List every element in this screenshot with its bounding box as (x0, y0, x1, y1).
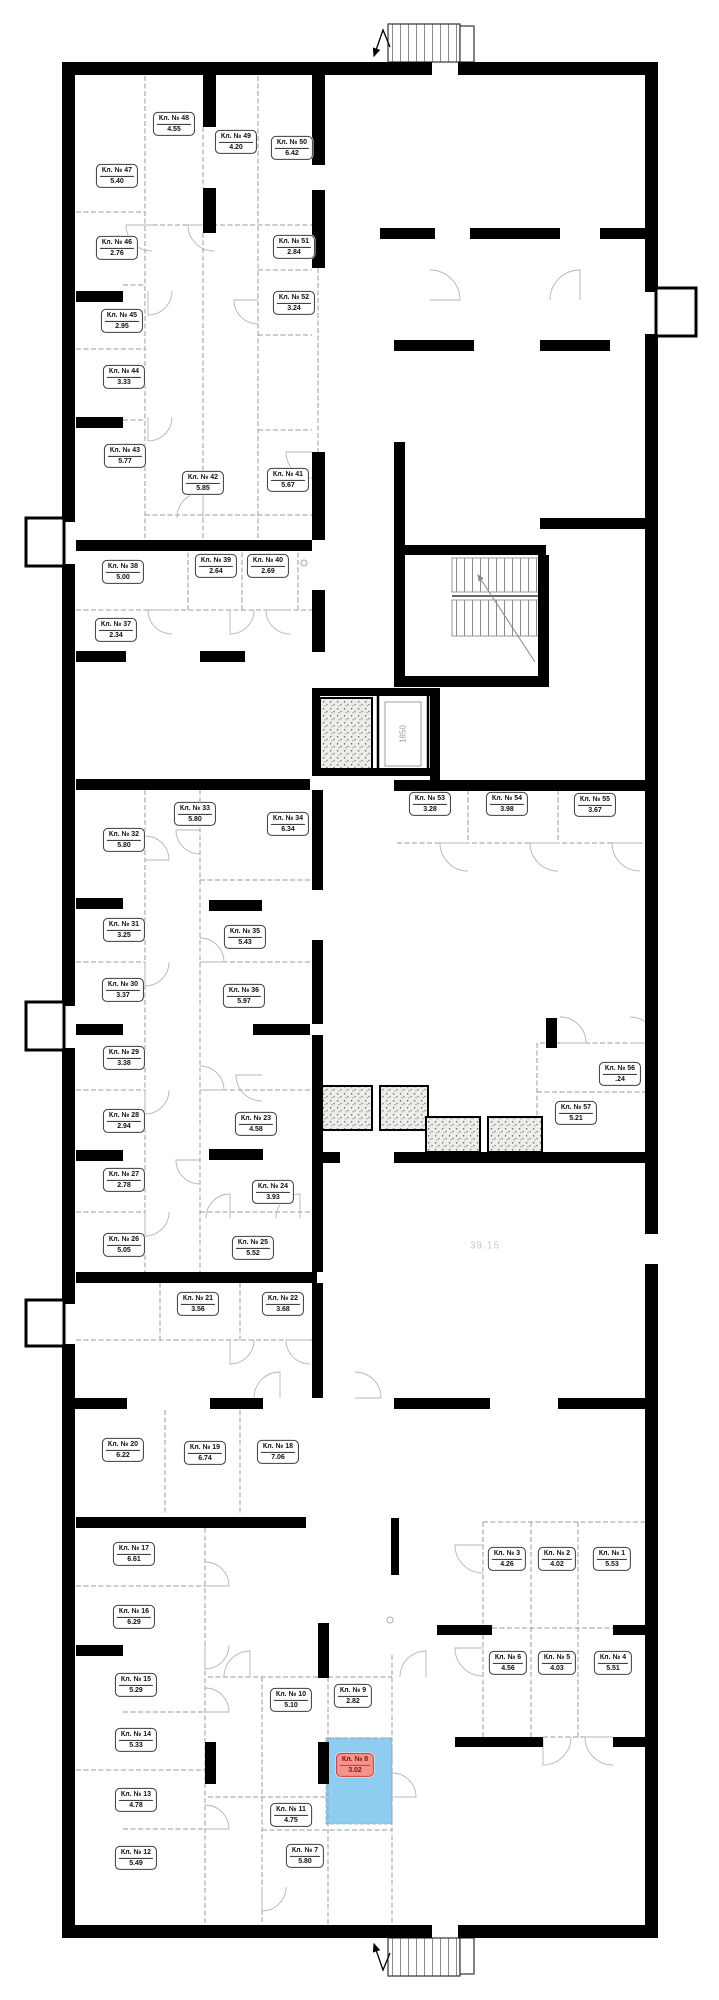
room-area: 2.95 (105, 322, 139, 332)
room-name: Кл. № 2 (542, 1549, 572, 1560)
room-area: 3.98 (490, 805, 524, 815)
room-name: Кл. № 4 (598, 1653, 628, 1664)
room-label-23[interactable]: Кл. № 234.58 (235, 1112, 277, 1136)
room-label-47[interactable]: Кл. № 475.40 (96, 164, 138, 188)
room-area: 5.80 (290, 1857, 320, 1867)
room-area: 2.94 (107, 1122, 141, 1132)
room-label-35[interactable]: Кл. № 355.43 (224, 925, 266, 949)
room-area: 6.61 (117, 1555, 151, 1565)
room-name: Кл. № 43 (108, 446, 142, 457)
room-area: 2.84 (277, 248, 311, 258)
room-name: Кл. № 18 (261, 1442, 295, 1453)
room-area: 3.24 (277, 304, 311, 314)
room-area: 5.67 (271, 481, 305, 491)
room-label-42[interactable]: Кл. № 425.85 (182, 471, 224, 495)
room-name: Кл. № 49 (219, 132, 253, 143)
room-name: Кл. № 24 (256, 1182, 290, 1193)
room-area: 2.34 (99, 631, 133, 641)
room-label-16[interactable]: Кл. № 166.29 (113, 1605, 155, 1629)
room-area: 3.02 (340, 1766, 370, 1776)
room-name: Кл. № 52 (277, 293, 311, 304)
room-area: 5.85 (186, 484, 220, 494)
room-name: Кл. № 40 (251, 556, 285, 567)
room-name: Кл. № 33 (178, 804, 212, 815)
room-name: Кл. № 14 (119, 1730, 153, 1741)
room-area: 3.28 (413, 805, 447, 815)
room-name: Кл. № 36 (227, 986, 261, 997)
room-label-6[interactable]: Кл. № 64.56 (489, 1651, 527, 1675)
room-label-43[interactable]: Кл. № 435.77 (104, 444, 146, 468)
room-label-18[interactable]: Кл. № 187.06 (257, 1440, 299, 1464)
room-area: 4.58 (239, 1125, 273, 1135)
room-label-36[interactable]: Кл. № 365.97 (223, 984, 265, 1008)
room-label-44[interactable]: Кл. № 443.33 (103, 365, 145, 389)
room-name: Кл. № 57 (559, 1103, 593, 1114)
room-label-51[interactable]: Кл. № 512.84 (273, 235, 315, 259)
room-label-33[interactable]: Кл. № 335.80 (174, 802, 216, 826)
room-label-34[interactable]: Кл. № 346.34 (267, 812, 309, 836)
room-area: 3.67 (578, 806, 612, 816)
room-name: Кл. № 13 (119, 1790, 153, 1801)
room-label-13[interactable]: Кл. № 134.78 (115, 1788, 157, 1812)
highlighted-room-fill[interactable] (326, 1738, 392, 1824)
room-name: Кл. № 22 (266, 1294, 300, 1305)
room-area: 3.93 (256, 1193, 290, 1203)
room-area: 3.37 (106, 991, 140, 1001)
room-label-4[interactable]: Кл. № 45.51 (594, 1651, 632, 1675)
room-name: Кл. № 56 (603, 1064, 637, 1075)
room-area: .24 (603, 1075, 637, 1085)
room-name: Кл. № 3 (492, 1549, 522, 1560)
room-label-10[interactable]: Кл. № 105.10 (270, 1688, 312, 1712)
room-name: Кл. № 41 (271, 470, 305, 481)
room-label-8[interactable]: Кл. № 83.02 (336, 1753, 374, 1777)
room-area: 5.40 (100, 177, 134, 187)
room-area: 5.10 (274, 1701, 308, 1711)
room-label-54[interactable]: Кл. № 543.98 (486, 792, 528, 816)
room-label-39[interactable]: Кл. № 392.64 (195, 554, 237, 578)
room-area: 4.02 (542, 1560, 572, 1570)
room-area: 4.78 (119, 1801, 153, 1811)
room-label-53[interactable]: Кл. № 533.28 (409, 792, 451, 816)
room-area: 5.97 (227, 997, 261, 1007)
room-name: Кл. № 5 (542, 1653, 572, 1664)
room-label-5[interactable]: Кл. № 54.03 (538, 1651, 576, 1675)
room-name: Кл. № 46 (100, 238, 134, 249)
room-area: 4.75 (274, 1816, 308, 1826)
room-area: 5.29 (119, 1686, 153, 1696)
room-name: Кл. № 26 (107, 1235, 141, 1246)
room-area: 2.76 (100, 249, 134, 259)
room-label-3[interactable]: Кл. № 34.26 (488, 1547, 526, 1571)
room-name: Кл. № 51 (277, 237, 311, 248)
room-area: 4.55 (157, 125, 191, 135)
room-label-14[interactable]: Кл. № 145.33 (115, 1728, 157, 1752)
room-name: Кл. № 35 (228, 927, 262, 938)
room-label-31[interactable]: Кл. № 313.25 (103, 918, 145, 942)
room-area: 6.29 (117, 1618, 151, 1628)
room-label-21[interactable]: Кл. № 213.56 (177, 1292, 219, 1316)
room-name: Кл. № 37 (99, 620, 133, 631)
room-label-29[interactable]: Кл. № 293.38 (103, 1046, 145, 1070)
room-area: 5.80 (178, 815, 212, 825)
room-label-17[interactable]: Кл. № 176.61 (113, 1542, 155, 1566)
room-area: 4.56 (493, 1664, 523, 1674)
room-name: Кл. № 47 (100, 166, 134, 177)
room-label-12[interactable]: Кл. № 125.49 (115, 1846, 157, 1870)
room-area: 5.43 (228, 938, 262, 948)
room-label-19[interactable]: Кл. № 196.74 (184, 1441, 226, 1465)
room-label-41[interactable]: Кл. № 415.67 (267, 468, 309, 492)
room-area: 5.53 (597, 1560, 627, 1570)
room-area: 4.20 (219, 143, 253, 153)
room-name: Кл. № 38 (106, 562, 140, 573)
cage-partition-lines (76, 76, 645, 1924)
room-area: 2.64 (199, 567, 233, 577)
room-area: 5.49 (119, 1859, 153, 1869)
room-area: 5.21 (559, 1114, 593, 1124)
room-name: Кл. № 42 (186, 473, 220, 484)
room-name: Кл. № 48 (157, 114, 191, 125)
room-name: Кл. № 6 (493, 1653, 523, 1664)
room-label-27[interactable]: Кл. № 272.78 (103, 1168, 145, 1192)
room-area: 4.03 (542, 1664, 572, 1674)
room-label-45[interactable]: Кл. № 452.95 (101, 309, 143, 333)
room-name: Кл. № 9 (338, 1686, 368, 1697)
room-area: 6.74 (188, 1454, 222, 1464)
room-name: Кл. № 31 (107, 920, 141, 931)
room-area: 3.56 (181, 1305, 215, 1315)
room-name: Кл. № 50 (275, 138, 309, 149)
room-label-20[interactable]: Кл. № 206.22 (102, 1438, 144, 1462)
room-label-46[interactable]: Кл. № 462.76 (96, 236, 138, 260)
room-label-24[interactable]: Кл. № 243.93 (252, 1180, 294, 1204)
room-area: 5.77 (108, 457, 142, 467)
room-label-28[interactable]: Кл. № 282.94 (103, 1109, 145, 1133)
room-label-32[interactable]: Кл. № 325.80 (103, 828, 145, 852)
room-name: Кл. № 16 (117, 1607, 151, 1618)
room-name: Кл. № 15 (119, 1675, 153, 1686)
room-area: 5.05 (107, 1246, 141, 1256)
room-name: Кл. № 8 (340, 1755, 370, 1766)
room-name: Кл. № 21 (181, 1294, 215, 1305)
room-label-57[interactable]: Кл. № 575.21 (555, 1101, 597, 1125)
room-label-25[interactable]: Кл. № 255.52 (232, 1236, 274, 1260)
room-area: 5.80 (107, 841, 141, 851)
room-area: 6.22 (106, 1451, 140, 1461)
room-area: 4.26 (492, 1560, 522, 1570)
room-label-1[interactable]: Кл. № 15.53 (593, 1547, 631, 1571)
room-name: Кл. № 25 (236, 1238, 270, 1249)
room-area: 5.33 (119, 1741, 153, 1751)
room-area: 5.52 (236, 1249, 270, 1259)
room-name: Кл. № 19 (188, 1443, 222, 1454)
room-name: Кл. № 53 (413, 794, 447, 805)
room-label-22[interactable]: Кл. № 223.68 (262, 1292, 304, 1316)
room-name: Кл. № 32 (107, 830, 141, 841)
room-name: Кл. № 29 (107, 1048, 141, 1059)
stair-symbols (374, 24, 540, 1976)
room-label-38[interactable]: Кл. № 385.00 (102, 560, 144, 584)
room-label-48[interactable]: Кл. № 484.55 (153, 112, 195, 136)
room-name: Кл. № 39 (199, 556, 233, 567)
room-label-26[interactable]: Кл. № 265.05 (103, 1233, 145, 1257)
room-name: Кл. № 30 (106, 980, 140, 991)
room-area: 7.06 (261, 1453, 295, 1463)
room-label-50[interactable]: Кл. № 506.42 (271, 136, 313, 160)
room-name: Кл. № 12 (119, 1848, 153, 1859)
room-name: Кл. № 54 (490, 794, 524, 805)
room-label-30[interactable]: Кл. № 303.37 (102, 978, 144, 1002)
room-area: 6.42 (275, 149, 309, 159)
room-area: 3.25 (107, 931, 141, 941)
room-label-49[interactable]: Кл. № 494.20 (215, 130, 257, 154)
room-name: Кл. № 28 (107, 1111, 141, 1122)
room-name: Кл. № 45 (105, 311, 139, 322)
room-name: Кл. № 7 (290, 1846, 320, 1857)
room-name: Кл. № 10 (274, 1690, 308, 1701)
room-label-11[interactable]: Кл. № 114.75 (270, 1803, 312, 1827)
room-area: 6.34 (271, 825, 305, 835)
room-area: 2.69 (251, 567, 285, 577)
room-name: Кл. № 11 (274, 1805, 308, 1816)
room-label-55[interactable]: Кл. № 553.67 (574, 793, 616, 817)
floor-plan-page: { "plan": { "wall_color": "#000000", "pa… (0, 0, 719, 2000)
room-area: 3.33 (107, 378, 141, 388)
room-label-9[interactable]: Кл. № 92.82 (334, 1684, 372, 1708)
room-label-52[interactable]: Кл. № 523.24 (273, 291, 315, 315)
room-name: Кл. № 20 (106, 1440, 140, 1451)
room-label-56[interactable]: Кл. № 56.24 (599, 1062, 641, 1086)
room-area: 2.78 (107, 1181, 141, 1191)
room-name: Кл. № 44 (107, 367, 141, 378)
room-area: 3.38 (107, 1059, 141, 1069)
room-name: Кл. № 55 (578, 795, 612, 806)
room-name: Кл. № 17 (117, 1544, 151, 1555)
room-label-15[interactable]: Кл. № 155.29 (115, 1673, 157, 1697)
room-area: 5.51 (598, 1664, 628, 1674)
room-label-2[interactable]: Кл. № 24.02 (538, 1547, 576, 1571)
room-label-7[interactable]: Кл. № 75.80 (286, 1844, 324, 1868)
room-name: Кл. № 23 (239, 1114, 273, 1125)
room-name: Кл. № 34 (271, 814, 305, 825)
room-label-40[interactable]: Кл. № 402.69 (247, 554, 289, 578)
room-area: 2.82 (338, 1697, 368, 1707)
room-label-37[interactable]: Кл. № 372.34 (95, 618, 137, 642)
room-name: Кл. № 27 (107, 1170, 141, 1181)
room-area: 3.68 (266, 1305, 300, 1315)
room-area: 5.00 (106, 573, 140, 583)
room-name: Кл. № 1 (597, 1549, 627, 1560)
